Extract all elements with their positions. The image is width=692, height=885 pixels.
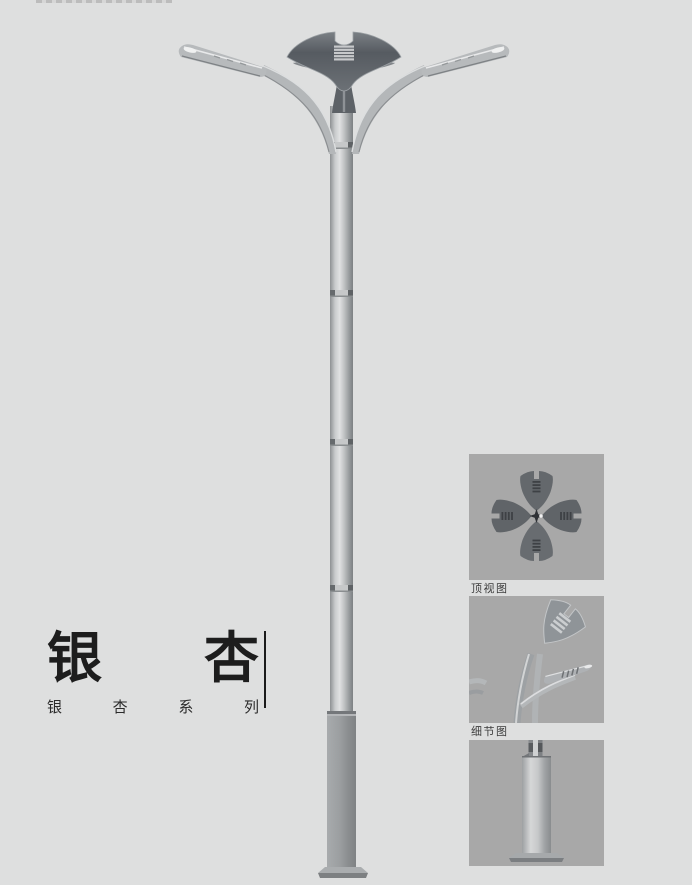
pole-base-column [327, 711, 356, 869]
title-divider-line [264, 631, 266, 708]
base-thin-pole [529, 740, 543, 758]
detail-thumbnails-column: 顶视图 [469, 454, 604, 866]
detail-view-caption: 细节图 [469, 723, 604, 739]
thumbnail-base-view [469, 740, 604, 866]
product-title: 银 杏 [47, 630, 259, 688]
title-char: 杏 [204, 630, 259, 688]
series-char: 列 [244, 696, 259, 717]
title-char: 银 [47, 630, 102, 688]
series-char: 杏 [113, 696, 128, 717]
lamp-pole [330, 106, 353, 714]
series-char: 系 [178, 696, 193, 717]
product-series-label: 银 杏 系 列 [47, 696, 259, 717]
pole-joint [330, 290, 353, 297]
series-char: 银 [47, 696, 62, 717]
lamp-head-left [179, 44, 267, 77]
lamp-head-right [422, 44, 510, 77]
top-view-caption: 顶视图 [469, 580, 604, 596]
lamp-arm-right [352, 65, 428, 154]
lamp-arm-left [260, 65, 336, 154]
base-view-drawing [469, 740, 604, 866]
pole-joint [330, 585, 353, 592]
base-column [522, 753, 551, 854]
pole-joint [330, 439, 353, 446]
ginkgo-crown-leaf [287, 32, 401, 91]
detail-view-drawing [469, 596, 604, 723]
thumbnail-detail-view [469, 596, 604, 723]
top-view-drawing [469, 454, 604, 580]
base-plate [318, 867, 368, 878]
base-view-plate [509, 853, 564, 862]
catalog-page: 顶视图 [0, 0, 692, 885]
far-arm-stub [469, 681, 486, 683]
center-glint [539, 514, 543, 518]
thumbnail-top-view [469, 454, 604, 580]
product-title-block: 银 杏 银 杏 系 列 [47, 630, 259, 717]
